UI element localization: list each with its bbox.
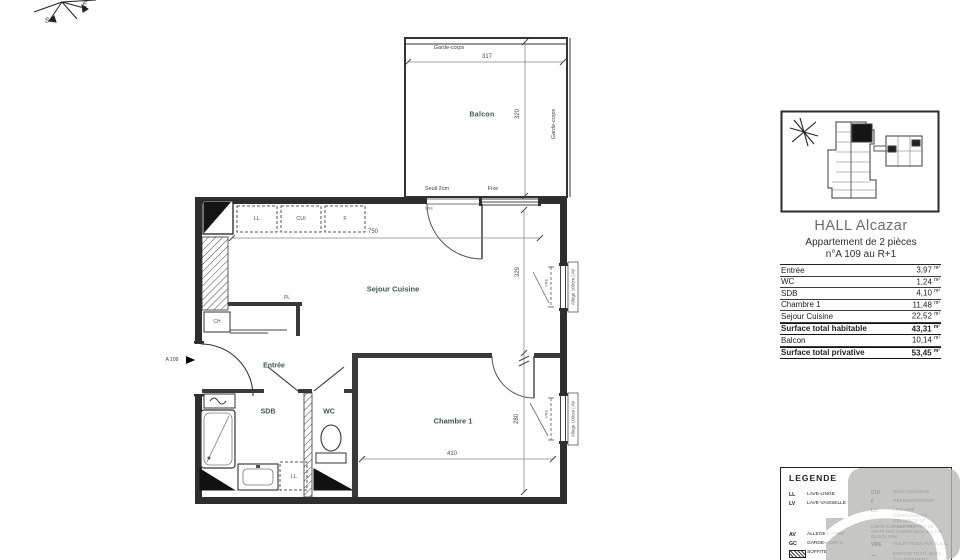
unit-entry-label: A 109 — [166, 357, 179, 363]
table-row-total-privative: Surface total privative 53,45 m² — [780, 347, 941, 360]
legend-abbr: LL — [789, 492, 795, 498]
ch-label: CH — [213, 319, 220, 325]
row-label: Chambre 1 — [781, 300, 821, 309]
floorplan-sheet: E S Garde-corps Garde-corps 317 320 Balc… — [0, 0, 960, 560]
legend-abbr: VRE — [871, 542, 882, 548]
balcon-room-label: Balcon — [469, 112, 494, 119]
table-row: Sejour Cuisine 22,52 m² — [780, 311, 941, 323]
legend-desc: SOFFITE — [807, 550, 827, 556]
table-row-total-habitable: Surface total habitable 43,31 m² — [780, 323, 941, 336]
soffite-hatch-swatch — [789, 550, 806, 558]
chambre-room-label: Chambre 1 — [434, 417, 473, 426]
allege-sejour-label: Allège 100cm | AV — [571, 269, 576, 305]
garde-corps-right-label: Garde-corps — [551, 109, 557, 140]
vre-chambre-label: VRE — [544, 410, 549, 418]
sejour-depth-dim: 329 — [515, 267, 521, 277]
compass-south-label: S — [45, 18, 50, 25]
legend-box: LEGENDE LL LAVE-LINGE LV LAVE-VAISSELLE … — [780, 467, 952, 560]
chambre-depth-dim: 280 — [514, 414, 520, 424]
door-vre-label: VRE — [425, 206, 433, 211]
sheet-subtitle: Appartement de 2 pièces — [780, 237, 942, 248]
legend-desc: LAVE-VAISSELLE — [807, 501, 846, 507]
kitchen-f-label: F — [343, 216, 346, 222]
row-label: Sejour Cuisine — [781, 312, 833, 321]
pl-label: PL — [284, 295, 290, 301]
table-row: Chambre 1 11,48 m² — [780, 300, 941, 312]
compass-east-label: E — [83, 2, 88, 9]
surface-table: Entrée 3,97 m² WC 1,24 m² SDB 4,10 m² Ch… — [780, 264, 941, 359]
entree-room-label: Entrée — [263, 363, 285, 370]
sheet-title: HALL Alcazar — [780, 218, 942, 234]
row-label: Surface total habitable — [781, 324, 867, 333]
sejour-width-dim: 750 — [368, 229, 378, 235]
garde-corps-top-label: Garde-corps — [434, 45, 465, 51]
legend-desc: ESPACE TECH. BLOC DU LOGEMENT — [893, 552, 945, 560]
legend-desc: LAVE-LINGE — [807, 492, 835, 498]
allege-chambre-label: Allège 100cm | AV — [571, 401, 576, 437]
row-label: Balcon — [781, 336, 805, 345]
legend-desc: BLOC CUISSON — [893, 490, 929, 496]
legend-note: LIMITE SUP. DES TRAPPES DE VISITE DES GA… — [871, 524, 945, 539]
legend-desc: ALLEGE VITREE — [807, 532, 844, 538]
row-label: Surface total privative — [781, 348, 865, 357]
legend-abbr: LC — [871, 508, 878, 514]
row-label: SDB — [781, 289, 797, 298]
kitchen-cui-label: CUI — [296, 216, 305, 222]
sheet-unit-line: n°A 109 au R+1 — [780, 249, 942, 260]
row-label: Entrée — [781, 266, 805, 275]
legend-abbr: GC — [789, 541, 797, 547]
legend-desc: VOLET ROULANT ELEC. — [893, 542, 948, 548]
tilde-symbol: ~ — [871, 551, 876, 560]
table-row: Balcon 10,14 m² — [780, 335, 941, 347]
key-plan-unit-highlight — [852, 124, 872, 142]
key-plan — [780, 110, 940, 213]
sdb-room-label: SDB — [261, 409, 276, 416]
sdb-ll-label: LL — [291, 474, 297, 480]
legend-abbr: F — [871, 499, 874, 505]
legend-desc: GARDE-CORPS — [807, 541, 843, 547]
table-row: Entrée 3,97 m² — [780, 265, 941, 277]
fixe-label: Fixe — [488, 186, 498, 192]
vre-sejour-label: VRE — [544, 279, 549, 287]
wc-room-label: WC — [323, 409, 335, 416]
seuil-label: Seuil 2cm — [425, 186, 449, 192]
row-label: WC — [781, 277, 794, 286]
sejour-room-label: Sejour Cuisine — [367, 285, 420, 294]
legend-desc: REFRIGERATEUR — [893, 499, 934, 505]
floorplan-drawing — [0, 0, 660, 560]
table-row: WC 1,24 m² — [780, 277, 941, 289]
kitchen-ll-label: LL — [254, 216, 260, 222]
balcony-width-dim: 317 — [482, 54, 492, 60]
legend-abbr: CUI — [871, 490, 880, 496]
legend-title: LEGENDE — [789, 473, 837, 483]
legend-abbr: LV — [789, 501, 795, 507]
chambre-width-dim: 410 — [447, 451, 457, 457]
table-row: SDB 4,10 m² — [780, 288, 941, 300]
balcony-depth-dim: 320 — [515, 109, 521, 119]
legend-abbr: AV — [789, 532, 796, 538]
